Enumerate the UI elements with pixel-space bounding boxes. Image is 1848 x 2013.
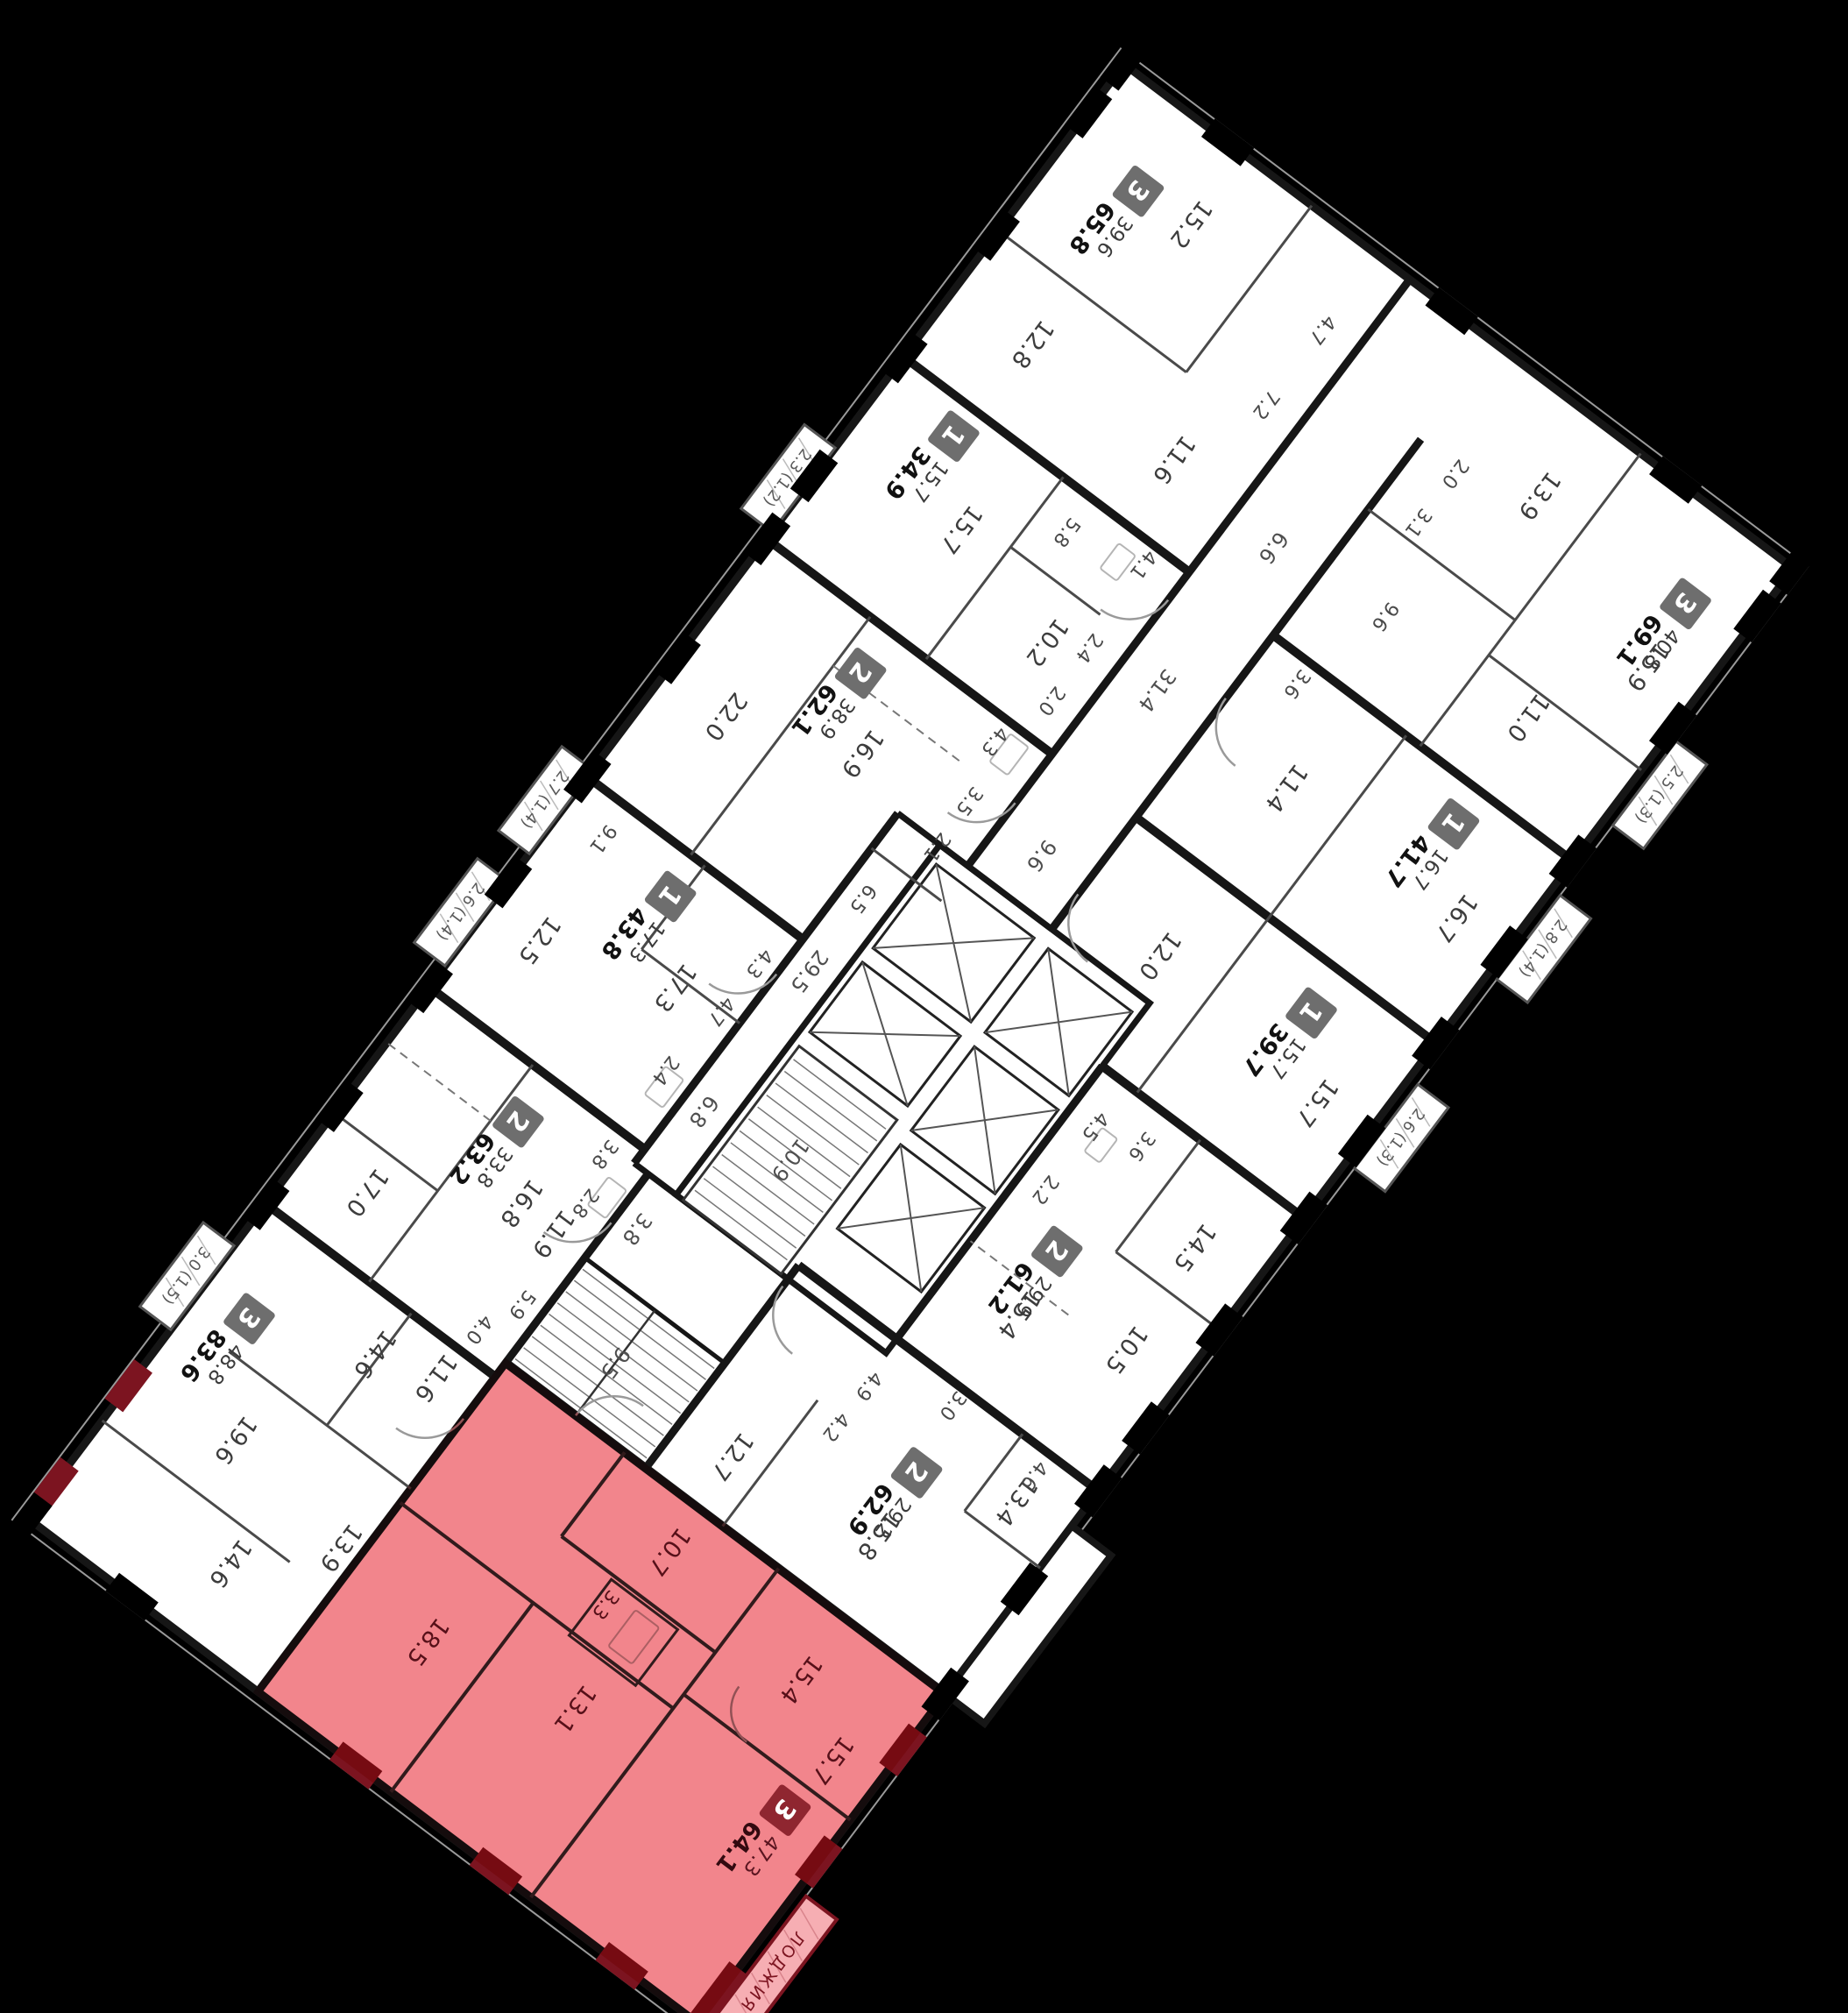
floor-plan-viewport: 2.3 (1.2)2.7 (1.4)2.6 (1.4)3.0 (1.5)2.5 … [0, 0, 1848, 2013]
floor-plan-canvas: 2.3 (1.2)2.7 (1.4)2.6 (1.4)3.0 (1.5)2.5 … [0, 0, 1848, 2013]
